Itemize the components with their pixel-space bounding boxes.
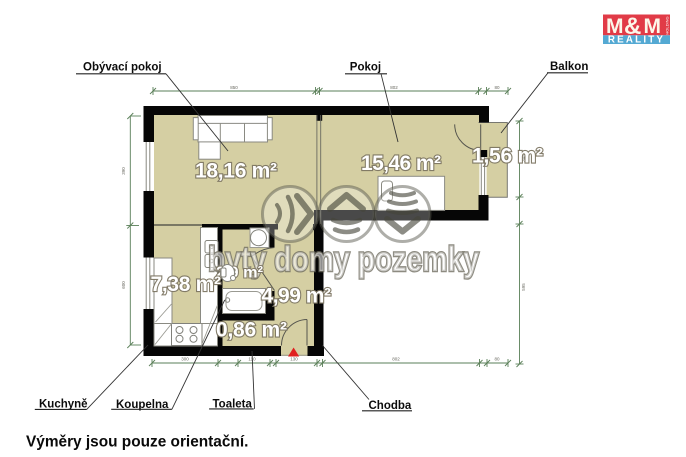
- svg-text:595: 595: [521, 283, 526, 291]
- svg-text:Pokoj: Pokoj: [350, 62, 381, 74]
- svg-text:130: 130: [290, 357, 298, 362]
- svg-text:15,46 m²: 15,46 m²: [361, 152, 441, 175]
- svg-text:4,99 m²: 4,99 m²: [262, 285, 332, 308]
- svg-text:7,38 m²: 7,38 m²: [151, 273, 222, 296]
- svg-text:Chodba: Chodba: [369, 400, 412, 412]
- svg-text:850: 850: [230, 85, 238, 90]
- svg-text:Kuchyně: Kuchyně: [39, 399, 88, 411]
- svg-text:1,56 m²: 1,56 m²: [472, 145, 543, 168]
- svg-text:REALITY: REALITY: [608, 35, 665, 46]
- svg-text:18,16 m²: 18,16 m²: [195, 160, 277, 183]
- svg-text:Výměry jsou pouze orientační.: Výměry jsou pouze orientační.: [26, 434, 248, 451]
- svg-text:300: 300: [181, 357, 189, 362]
- svg-text:80: 80: [494, 357, 500, 362]
- svg-text:HOLDING: HOLDING: [665, 16, 670, 34]
- svg-text:Obývací pokoj: Obývací pokoj: [83, 62, 162, 74]
- svg-text:0,86 m²: 0,86 m²: [216, 319, 287, 342]
- svg-text:802: 802: [390, 85, 398, 90]
- svg-text:600: 600: [121, 281, 126, 289]
- svg-text:802: 802: [392, 357, 400, 362]
- svg-text:Balkon: Balkon: [550, 61, 588, 73]
- svg-text:390: 390: [121, 167, 126, 175]
- svg-text:80: 80: [494, 85, 500, 90]
